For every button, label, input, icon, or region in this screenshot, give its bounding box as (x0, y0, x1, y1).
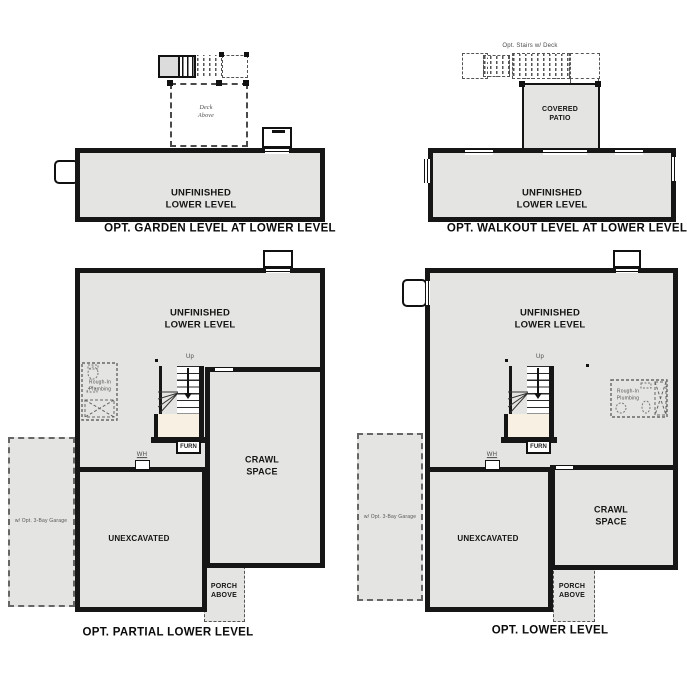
room-label-unfinished: UNFINISHED LOWER LEVEL (517, 188, 588, 213)
stair-arrowhead-icon (534, 393, 542, 399)
water-heater-label: WH (487, 452, 497, 460)
unexcavated-label: UNEXCAVATED (457, 534, 518, 544)
deck-post (244, 52, 249, 57)
garage-option-label: w/ Opt. 3-Bay Garage (15, 518, 67, 525)
deck-stair-dashed-treads (512, 53, 570, 79)
plumbing-label: Rough-In Plumbing (89, 380, 111, 393)
deck-above-label: Deck Above (198, 105, 214, 121)
winder-steps-icon (158, 391, 178, 415)
caption-partial-lower-level: OPT. PARTIAL LOWER LEVEL (83, 626, 254, 641)
stair-wall (549, 366, 554, 439)
room-label-unfinished: UNFINISHED LOWER LEVEL (515, 308, 586, 333)
room-label-unfinished: UNFINISHED LOWER LEVEL (165, 308, 236, 333)
stair-landing (154, 414, 199, 438)
stair-wall (199, 366, 204, 439)
opt-stairs-label: Opt. Stairs w/ Deck (502, 43, 557, 51)
window-well (262, 127, 292, 148)
window-well (613, 250, 641, 268)
deck-post (243, 80, 249, 86)
crawl-space-label: CRAWL SPACE (594, 504, 628, 527)
deck-post (167, 80, 173, 86)
stair-direction-arrow (187, 368, 189, 394)
window (465, 149, 493, 155)
deck-stair-landing (158, 55, 196, 78)
deck-post (219, 52, 224, 57)
window-glazing (616, 268, 638, 273)
deck-stair-dashed-landing (570, 53, 600, 79)
window-well (402, 279, 427, 307)
stair-direction-arrow (537, 368, 539, 394)
crawl-space-label: CRAWL SPACE (245, 454, 279, 477)
stairs-up-label: Up (536, 354, 544, 362)
fixture-water-heater (135, 460, 150, 470)
patio-post (519, 81, 525, 87)
stair-post (155, 359, 158, 362)
deck-stair-dashed-treads (483, 55, 510, 77)
water-heater-label: WH (137, 452, 147, 460)
deck-post (216, 80, 222, 86)
well-ladder (272, 130, 285, 133)
window-well (263, 250, 293, 268)
caption-garden-level: OPT. GARDEN LEVEL AT LOWER LEVEL (104, 222, 336, 237)
caption-walkout-level: OPT. WALKOUT LEVEL AT LOWER LEVEL (447, 222, 687, 237)
caption-lower-level: OPT. LOWER LEVEL (492, 624, 609, 639)
window (615, 149, 643, 155)
window (424, 159, 430, 183)
furnace-label: FURN (530, 444, 547, 450)
fixture-furnace: FURN (176, 440, 201, 454)
stairs-up-label: Up (186, 354, 194, 362)
deck-stair-dashed-landing (222, 55, 248, 78)
crawl-access-window (556, 465, 573, 470)
fixture-water-heater (485, 460, 500, 470)
winder-steps-icon (508, 391, 528, 415)
floorplan-sheet: Deck Above UNFINISHED LOWER LEVEL OPT. G… (0, 0, 687, 687)
porch-above-label: PORCH ABOVE (559, 582, 585, 600)
deck-stair-treads (182, 57, 194, 76)
porch-above-label: PORCH ABOVE (211, 582, 237, 600)
window-glazing (266, 268, 290, 273)
plumbing-label: Rough-In Plumbing (617, 389, 639, 402)
fixture-furnace: FURN (526, 440, 551, 454)
support-post (586, 364, 589, 367)
unexcavated-label: UNEXCAVATED (108, 534, 169, 544)
window-glazing (425, 281, 430, 305)
garage-option-label: w/ Opt. 3-Bay Garage (364, 514, 416, 521)
deck-stair-dashed-treads (197, 55, 222, 78)
window-glazing (265, 148, 289, 154)
window (671, 157, 677, 181)
crawl-access-window (215, 367, 233, 372)
room-label-unfinished: UNFINISHED LOWER LEVEL (166, 188, 237, 213)
stair-post (505, 359, 508, 362)
deck-stair-platform (160, 57, 180, 76)
covered-patio-label: COVERED PATIO (542, 105, 578, 123)
patio-door (543, 149, 587, 155)
furnace-label: FURN (180, 444, 197, 450)
stair-landing (504, 414, 549, 438)
stair-arrowhead-icon (184, 393, 192, 399)
patio-post (595, 81, 601, 87)
